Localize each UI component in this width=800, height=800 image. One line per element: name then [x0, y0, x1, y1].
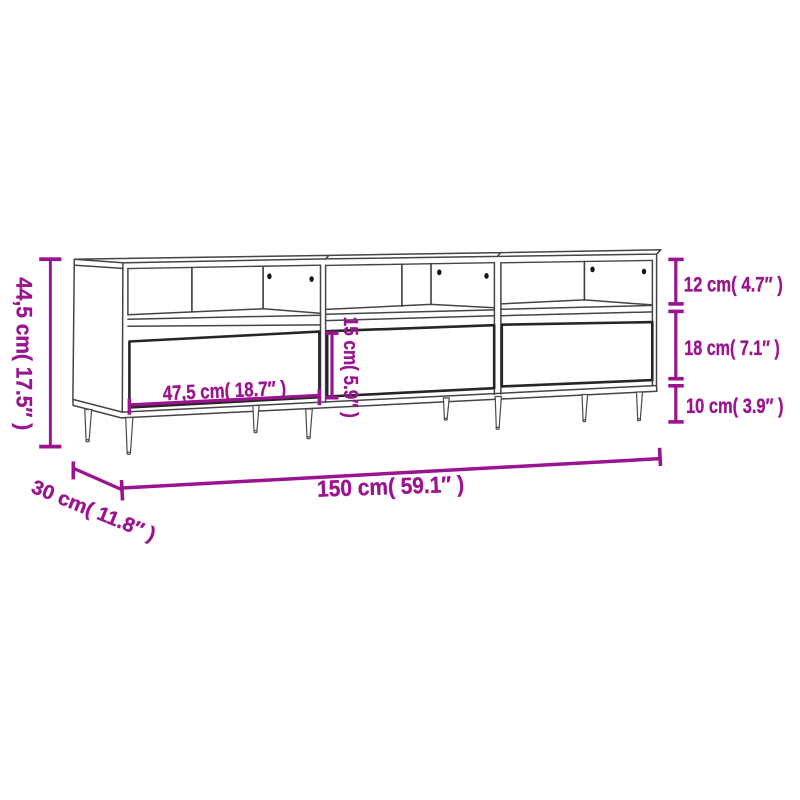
svg-text:44,5 cm( 17.5″ ): 44,5 cm( 17.5″ ): [12, 277, 37, 430]
svg-text:18 cm( 7.1″ ): 18 cm( 7.1″ ): [684, 337, 780, 360]
svg-text:15 cm( 5.9″ ): 15 cm( 5.9″ ): [339, 317, 361, 418]
svg-text:150 cm( 59.1″ ): 150 cm( 59.1″ ): [317, 471, 465, 502]
svg-text:10 cm( 3.9″ ): 10 cm( 3.9″ ): [686, 395, 784, 418]
svg-text:12 cm( 4.7″ ): 12 cm( 4.7″ ): [684, 273, 783, 296]
